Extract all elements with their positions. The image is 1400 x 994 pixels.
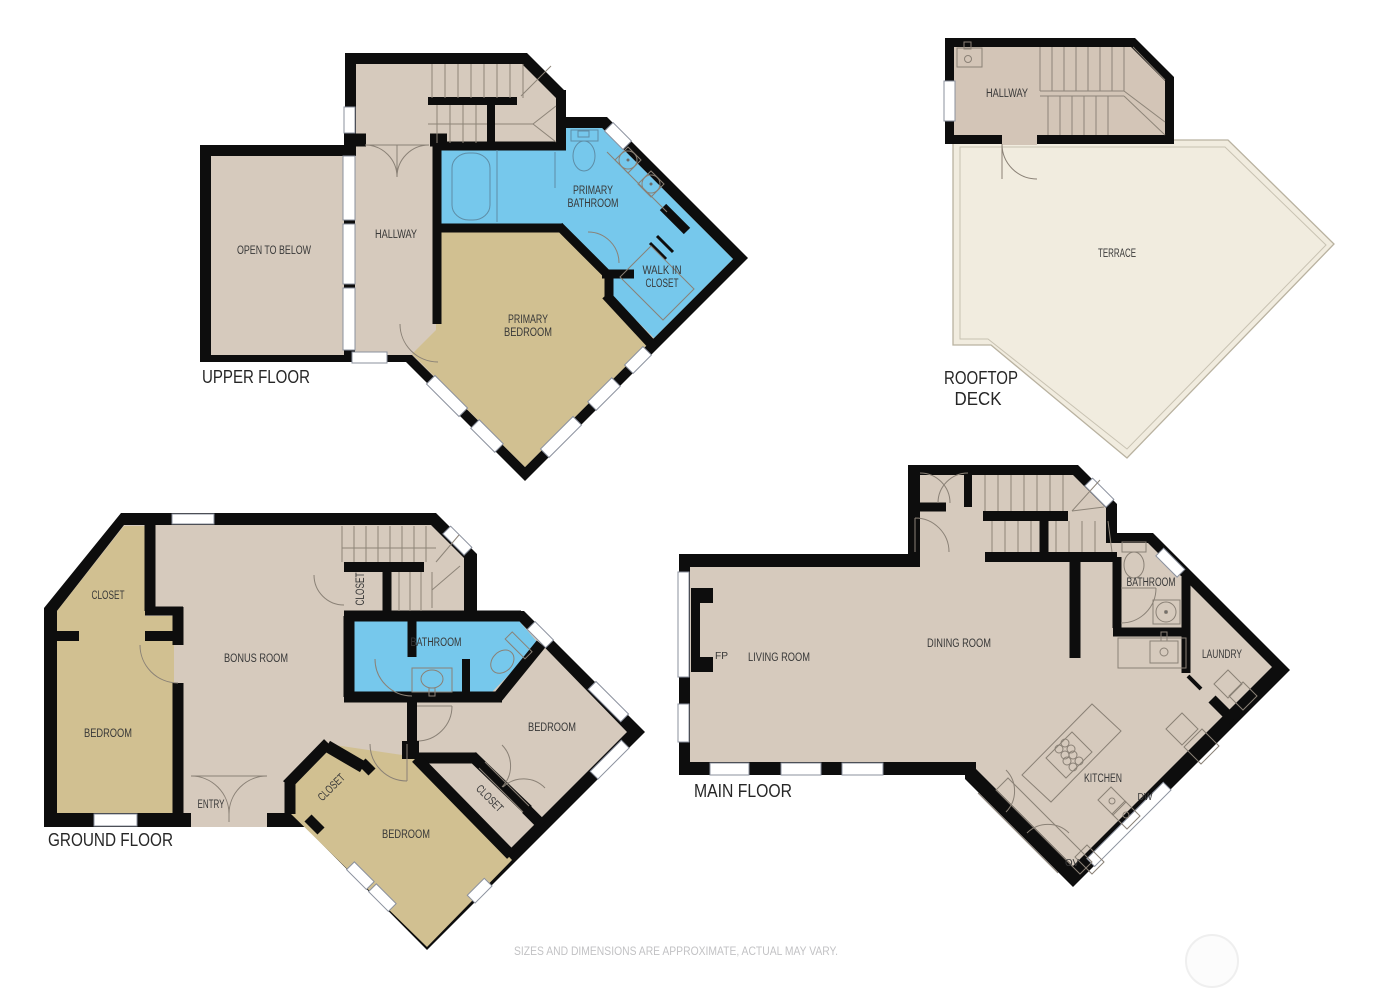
svg-text:WALK IN: WALK IN bbox=[643, 265, 682, 277]
svg-text:BATHROOM: BATHROOM bbox=[568, 198, 619, 210]
svg-text:HALLWAY: HALLWAY bbox=[375, 229, 417, 241]
svg-text:BEDROOM: BEDROOM bbox=[504, 327, 552, 339]
svg-text:UPPER FLOOR: UPPER FLOOR bbox=[202, 367, 310, 387]
svg-text:CLOSET: CLOSET bbox=[646, 278, 679, 290]
svg-text:DECK: DECK bbox=[955, 389, 1002, 409]
svg-text:LIVING ROOM: LIVING ROOM bbox=[748, 652, 810, 664]
svg-text:OPEN TO BELOW: OPEN TO BELOW bbox=[237, 245, 311, 257]
svg-text:DW: DW bbox=[1138, 792, 1153, 803]
svg-text:CLOSET: CLOSET bbox=[355, 573, 367, 606]
svg-text:TERRACE: TERRACE bbox=[1098, 248, 1136, 260]
svg-text:BEDROOM: BEDROOM bbox=[528, 722, 576, 734]
svg-text:SIZES AND DIMENSIONS ARE APPRO: SIZES AND DIMENSIONS ARE APPROXIMATE, AC… bbox=[514, 946, 838, 958]
svg-text:HALLWAY: HALLWAY bbox=[986, 88, 1028, 100]
svg-text:BATHROOM: BATHROOM bbox=[411, 637, 462, 649]
svg-text:BEDROOM: BEDROOM bbox=[382, 829, 430, 841]
svg-text:GROUND FLOOR: GROUND FLOOR bbox=[48, 830, 173, 850]
svg-text:BONUS ROOM: BONUS ROOM bbox=[224, 653, 288, 665]
svg-text:CLOSET: CLOSET bbox=[92, 590, 125, 602]
svg-text:PRIMARY: PRIMARY bbox=[508, 314, 548, 326]
svg-text:MAIN FLOOR: MAIN FLOOR bbox=[694, 781, 792, 801]
svg-text:KITCHEN: KITCHEN bbox=[1084, 773, 1122, 785]
svg-text:BEDROOM: BEDROOM bbox=[84, 728, 132, 740]
svg-text:LAUNDRY: LAUNDRY bbox=[1202, 649, 1242, 661]
svg-text:ENTRY: ENTRY bbox=[198, 799, 225, 811]
svg-text:DINING ROOM: DINING ROOM bbox=[927, 638, 991, 650]
svg-text:FP: FP bbox=[715, 651, 728, 662]
svg-text:BATHROOM: BATHROOM bbox=[1127, 577, 1176, 589]
svg-text:PRIMARY: PRIMARY bbox=[573, 185, 613, 197]
svg-text:ROOFTOP: ROOFTOP bbox=[944, 368, 1018, 388]
svg-text:OV: OV bbox=[1065, 858, 1079, 869]
